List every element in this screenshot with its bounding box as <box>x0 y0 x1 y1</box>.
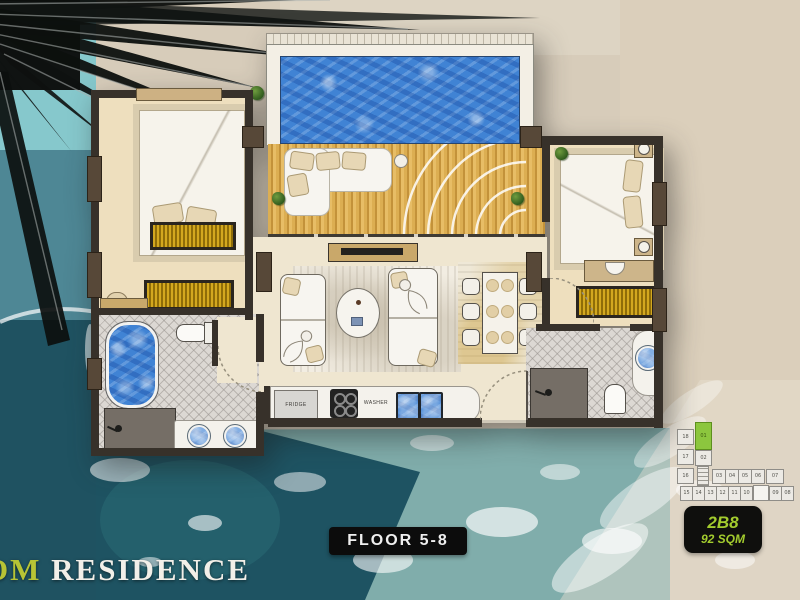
side-table <box>394 154 408 168</box>
window <box>136 88 222 101</box>
unit-code: 2B8 <box>707 514 738 531</box>
pillow <box>622 195 643 229</box>
shower-right <box>530 368 588 420</box>
place-setting <box>501 305 514 318</box>
door-threshold <box>482 420 526 423</box>
wall <box>542 136 663 145</box>
coffee-table <box>336 288 380 338</box>
sink-basin <box>188 425 210 447</box>
shower-left <box>104 408 176 452</box>
wall <box>268 418 482 427</box>
burner <box>345 405 357 417</box>
washer-label: WASHER <box>360 396 392 410</box>
place-setting <box>486 305 499 318</box>
brand-prefix: OM <box>0 552 41 587</box>
column <box>87 252 102 298</box>
wall <box>256 392 264 456</box>
unit-area: 92 SQM <box>701 533 745 545</box>
keyplan-unit: 04 <box>725 469 739 484</box>
keyplan-unit: 16 <box>677 468 694 484</box>
keyplan-unit: 03 <box>712 469 726 484</box>
tv-screen <box>341 248 403 255</box>
sink-basin <box>224 425 246 447</box>
cushion <box>289 150 315 171</box>
decor-item <box>351 317 363 326</box>
kitchen-sink <box>396 392 420 421</box>
column <box>652 182 667 226</box>
plant-icon <box>272 192 285 205</box>
unit-badge: 2B8 92 SQM <box>684 506 762 553</box>
dining-chair <box>462 329 480 346</box>
place-setting <box>501 279 514 292</box>
keyplan-unit: 17 <box>677 449 694 465</box>
kitchen-sink <box>419 392 443 421</box>
dining-chair <box>519 303 537 320</box>
cushion <box>315 151 341 171</box>
screenshot-root: FRIDGE WASHER <box>0 0 800 600</box>
keyplan-unit: 02 <box>695 450 712 466</box>
floor-badge: FLOOR 5-8 <box>329 527 467 555</box>
bed-master <box>133 104 251 262</box>
wall <box>526 418 663 427</box>
bathtub <box>106 322 158 408</box>
keyplan-core-blank <box>753 485 769 501</box>
column <box>256 252 272 292</box>
burner <box>345 393 357 405</box>
place-setting <box>486 279 499 292</box>
throw-pillow <box>281 276 301 296</box>
lamp-icon <box>638 241 650 253</box>
wall <box>91 448 263 456</box>
bathroom-door-arc <box>218 342 264 392</box>
stool <box>605 262 625 275</box>
wall <box>542 278 550 328</box>
cushion <box>286 172 310 197</box>
wall <box>91 308 253 315</box>
fridge: FRIDGE <box>274 390 318 419</box>
floor-plan: FRIDGE WASHER <box>90 40 672 472</box>
keyplan-unit: 10 <box>740 486 753 501</box>
pillow <box>622 159 644 193</box>
tv-console <box>328 243 418 262</box>
keyplan-unit: 08 <box>781 486 794 501</box>
stairs-icon <box>697 466 709 486</box>
dining-chair <box>462 303 480 320</box>
floor-badge-label: FLOOR 5-8 <box>347 532 449 550</box>
stove <box>330 389 358 418</box>
keyplan-unit: 18 <box>677 429 694 445</box>
column <box>520 126 542 148</box>
plant-icon <box>511 192 524 205</box>
brand-name: RESIDENCE <box>51 552 250 587</box>
column <box>87 156 102 202</box>
brand-wordmark: OM RESIDENCE <box>0 552 250 588</box>
column <box>242 126 264 148</box>
key-plan: 18 01 17 02 16 03 04 05 06 07 15 14 13 1… <box>672 420 794 504</box>
plant-icon <box>555 147 568 160</box>
bed-bench <box>150 222 236 250</box>
place-setting <box>486 331 499 344</box>
keyplan-unit-highlighted: 01 <box>695 422 712 450</box>
bedroom-door-arc <box>550 278 594 324</box>
fridge-label: FRIDGE <box>275 391 317 418</box>
column <box>652 288 667 332</box>
vanity-console <box>584 260 654 282</box>
keyplan-unit: 07 <box>766 469 784 484</box>
entrance-door-arc <box>480 370 528 420</box>
place-setting <box>501 331 514 344</box>
decor-item <box>356 300 361 305</box>
keyplan-unit: 05 <box>738 469 752 484</box>
nightstand <box>634 238 653 256</box>
keyplan-unit: 06 <box>751 469 765 484</box>
pool <box>280 56 520 144</box>
balcony-deck <box>268 144 545 234</box>
wall <box>536 324 600 331</box>
shower-head-icon <box>545 389 552 396</box>
wall <box>245 90 253 320</box>
cushion <box>341 151 366 171</box>
dining-chair <box>462 278 480 295</box>
column <box>526 252 542 292</box>
column <box>87 358 102 390</box>
wall <box>542 144 550 222</box>
toilet-right <box>604 384 626 414</box>
dresser <box>144 280 234 310</box>
